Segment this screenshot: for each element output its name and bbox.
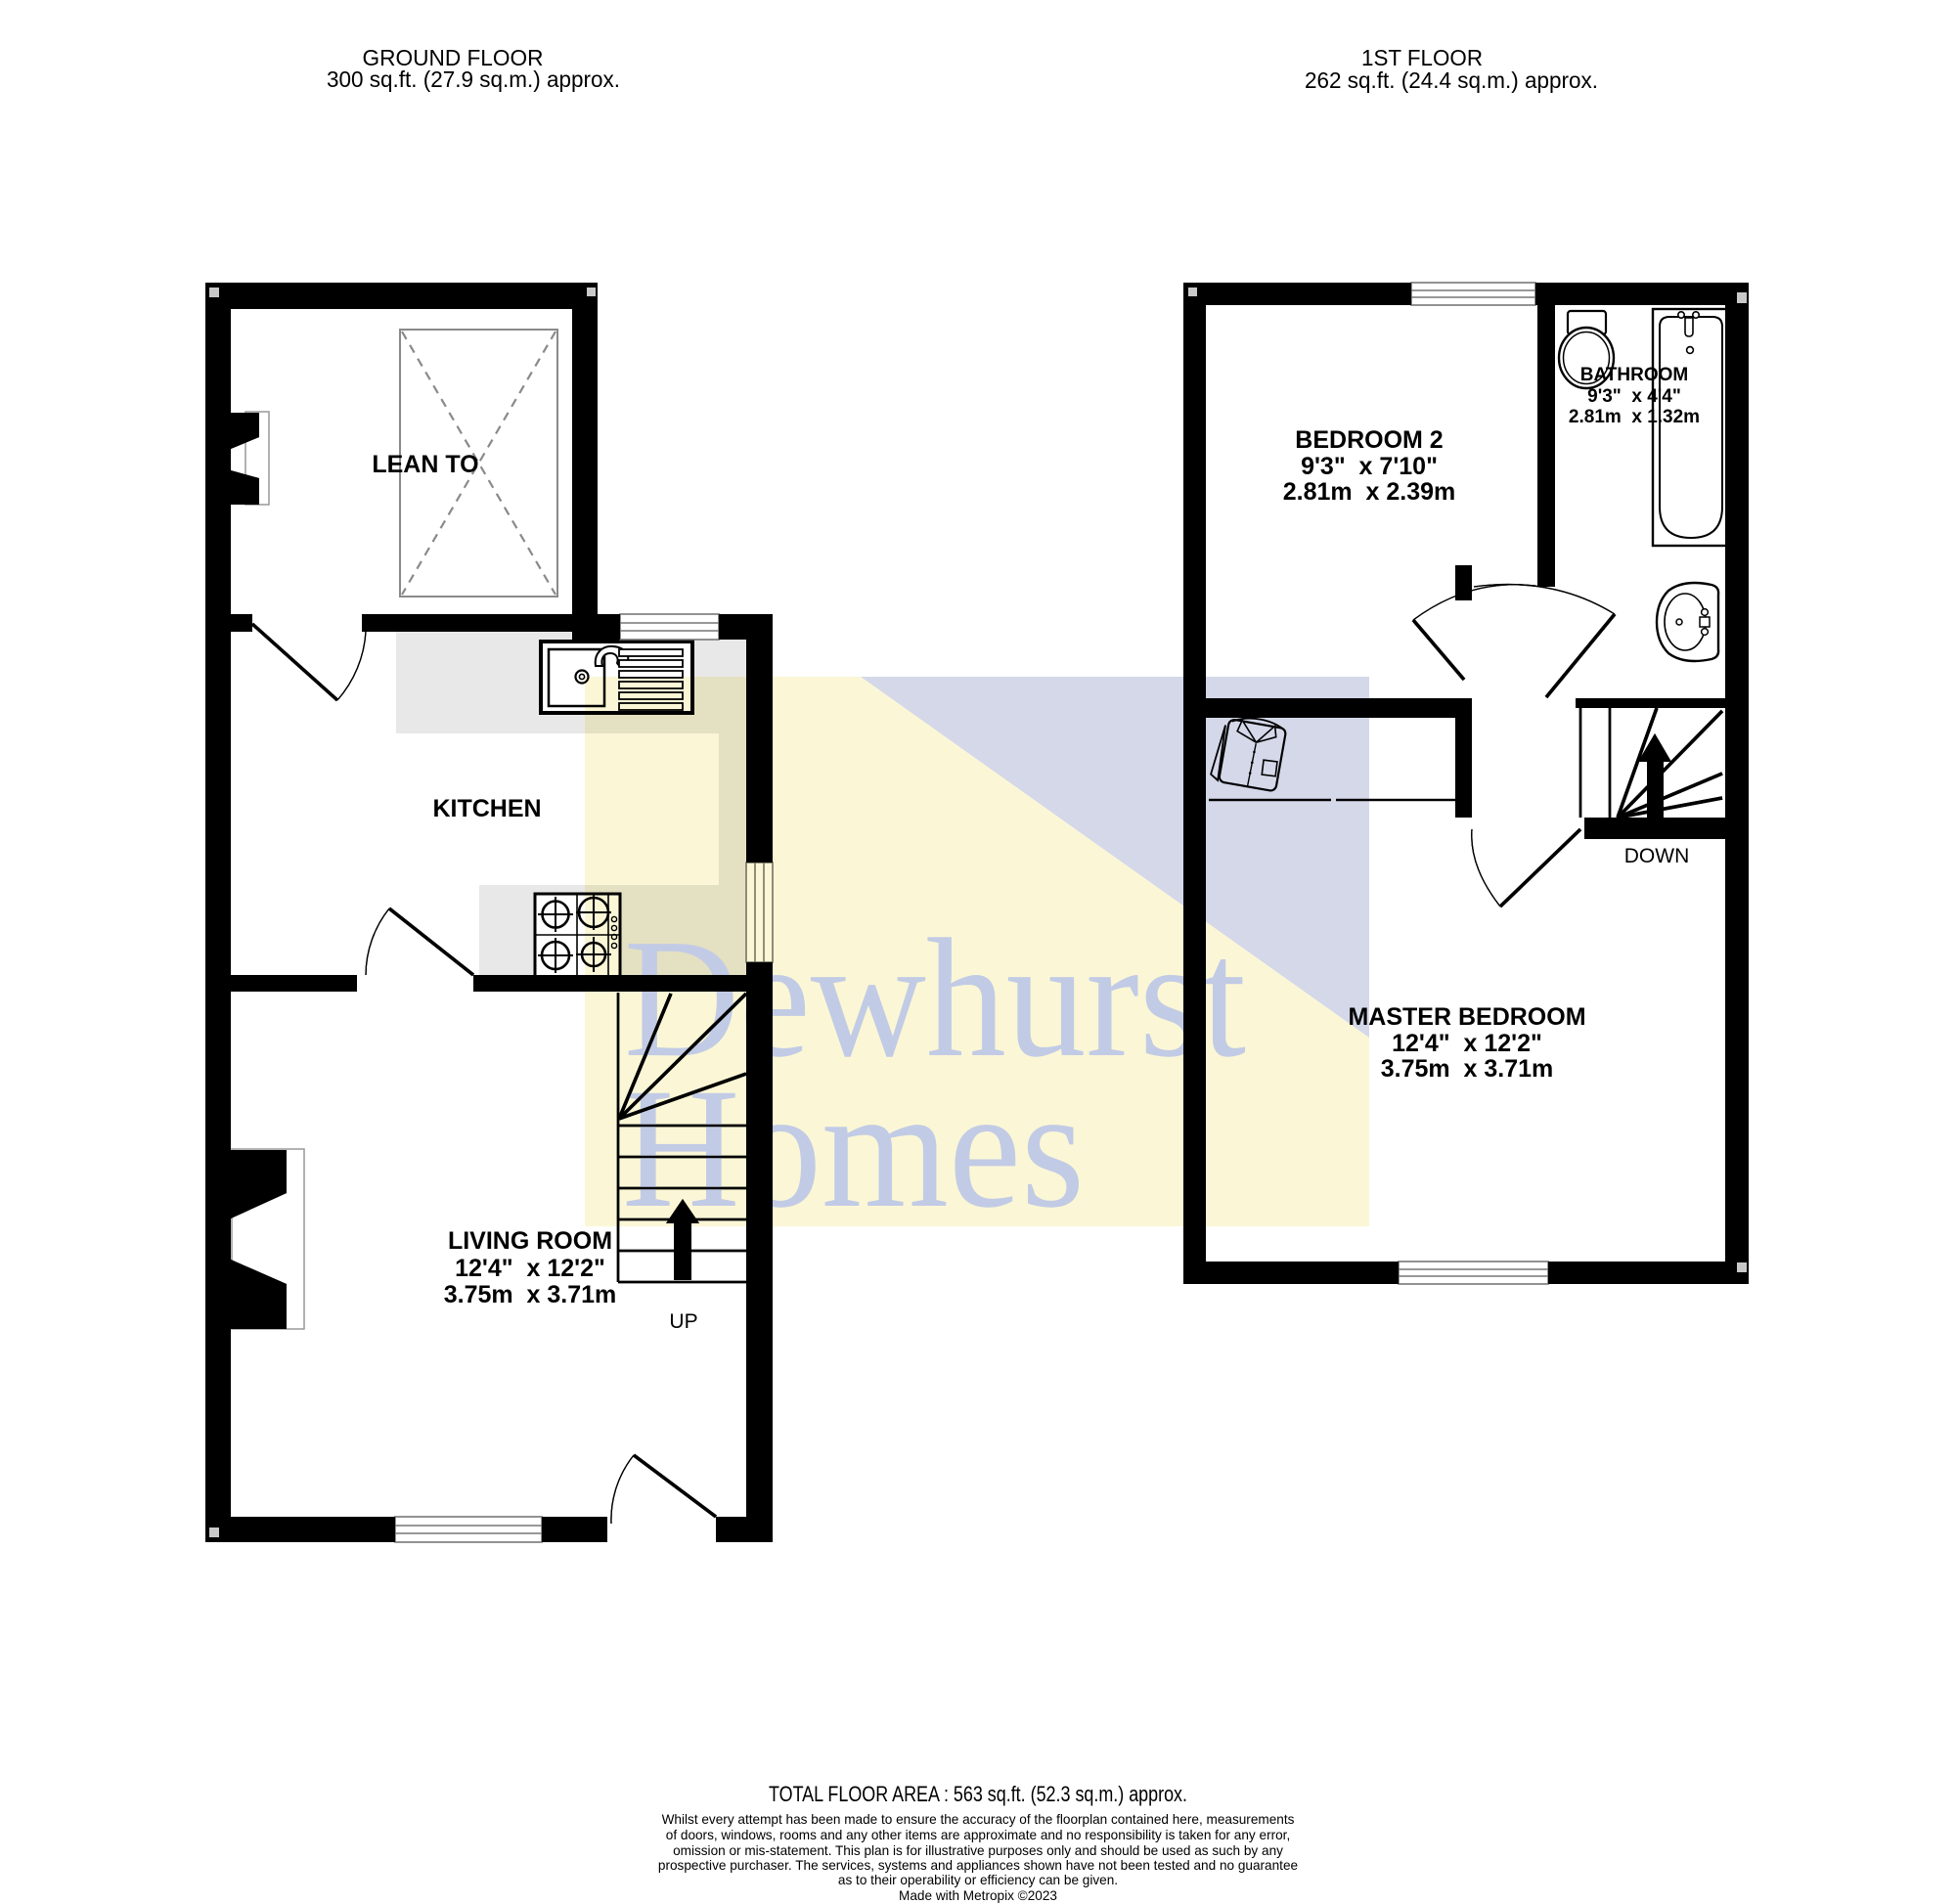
svg-text:BATHROOM: BATHROOM bbox=[1580, 365, 1688, 385]
svg-text:12'4" x 12'2": 12'4" x 12'2" bbox=[455, 1255, 605, 1282]
svg-text:9'3" x 4'4": 9'3" x 4'4" bbox=[1587, 386, 1681, 407]
svg-text:LIVING ROOM: LIVING ROOM bbox=[448, 1227, 612, 1255]
svg-text:MASTER BEDROOM: MASTER BEDROOM bbox=[1348, 1003, 1585, 1031]
svg-text:of doors, windows, rooms and a: of doors, windows, rooms and any other i… bbox=[666, 1828, 1290, 1842]
svg-text:3.75m x 3.71m: 3.75m x 3.71m bbox=[1381, 1055, 1554, 1083]
svg-text:TOTAL FLOOR AREA : 563 sq.ft.: TOTAL FLOOR AREA : 563 sq.ft. (52.3 sq.m… bbox=[769, 1782, 1187, 1806]
svg-text:262 sq.ft. (24.4 sq.m.) approx: 262 sq.ft. (24.4 sq.m.) approx. bbox=[1305, 67, 1598, 93]
svg-text:3.75m x 3.71m: 3.75m x 3.71m bbox=[444, 1281, 617, 1308]
svg-text:LEAN TO: LEAN TO bbox=[372, 451, 478, 478]
svg-text:9'3" x 7'10": 9'3" x 7'10" bbox=[1301, 453, 1438, 480]
svg-text:Whilst every attempt has been: Whilst every attempt has been made to en… bbox=[662, 1812, 1295, 1827]
svg-text:as to their operability or eff: as to their operability or efficiency ca… bbox=[838, 1873, 1118, 1887]
svg-text:2.81m x 2.39m: 2.81m x 2.39m bbox=[1283, 478, 1456, 506]
svg-text:300 sq.ft. (27.9 sq.m.) approx: 300 sq.ft. (27.9 sq.m.) approx. bbox=[327, 66, 620, 92]
svg-text:12'4" x 12'2": 12'4" x 12'2" bbox=[1392, 1030, 1542, 1057]
svg-text:omission or mis-statement. Thi: omission or mis-statement. This plan is … bbox=[673, 1843, 1283, 1858]
svg-text:KITCHEN: KITCHEN bbox=[432, 795, 541, 822]
svg-text:2.81m x 1.32m: 2.81m x 1.32m bbox=[1569, 407, 1700, 427]
svg-text:DOWN: DOWN bbox=[1624, 845, 1690, 867]
svg-text:UP: UP bbox=[669, 1310, 697, 1333]
svg-text:Made with Metropix ©2023: Made with Metropix ©2023 bbox=[899, 1888, 1057, 1903]
svg-text:BEDROOM 2: BEDROOM 2 bbox=[1295, 426, 1443, 454]
svg-text:prospective purchaser. The ser: prospective purchaser. The services, sys… bbox=[658, 1858, 1298, 1873]
